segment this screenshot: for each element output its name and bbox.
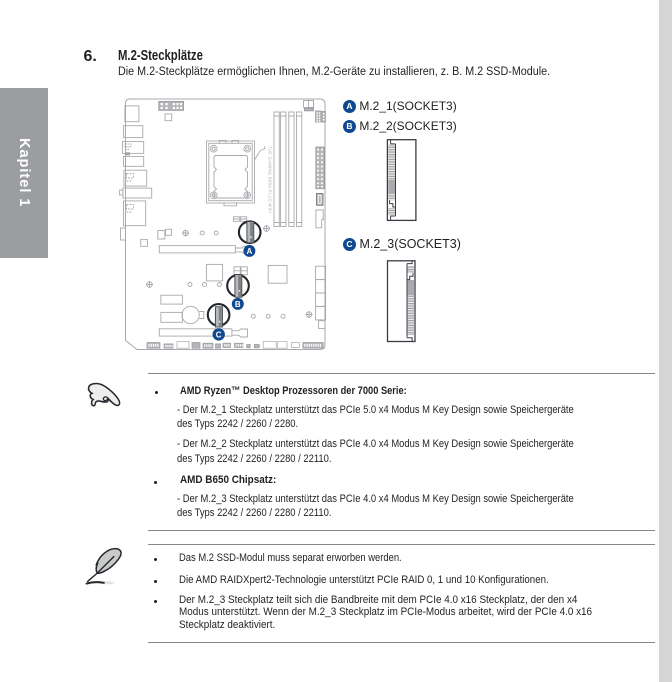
svg-text:TUF GAMING B650-PLUS WIFI: TUF GAMING B650-PLUS WIFI <box>268 146 273 213</box>
svg-text:A: A <box>247 247 253 256</box>
svg-text:B: B <box>235 300 241 309</box>
svg-text:C: C <box>216 331 222 340</box>
